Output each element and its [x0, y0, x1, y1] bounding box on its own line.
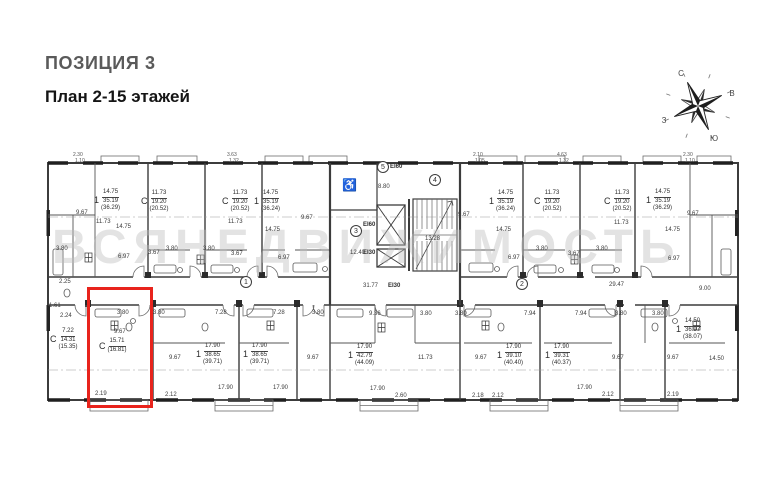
- dimension-label: 17.90: [577, 385, 592, 391]
- dimension-label: 1.32: [229, 158, 239, 164]
- entry-number-badge: 3: [350, 225, 362, 237]
- wheelchair-icon: ♿: [342, 178, 357, 192]
- fire-rating-label: EI30: [363, 250, 375, 256]
- dimension-label: 6.97: [118, 254, 130, 260]
- dimension-label: 3.80: [203, 246, 215, 252]
- dimension-label: 3.67: [568, 251, 580, 257]
- dimension-label: 2.12: [602, 392, 614, 398]
- dimension-label: 9.67: [667, 355, 679, 361]
- dimension-label: 2.25: [59, 279, 71, 285]
- dimension-label: 3.80: [166, 246, 178, 252]
- apartment-type: С: [534, 197, 541, 206]
- apartment-type: 1: [94, 196, 99, 205]
- dimension-label: 2.24: [60, 313, 72, 319]
- apartment-type: С: [50, 335, 57, 344]
- dimension-label: 17.90: [370, 386, 385, 392]
- dimension-label: 7.94: [524, 311, 536, 317]
- dimension-label: 3.67: [148, 250, 160, 256]
- fire-rating-label: EI60: [363, 222, 375, 228]
- entry-number-badge: 4: [429, 174, 441, 186]
- apartment-label: 117.9042.79(44.09): [348, 344, 374, 368]
- dimension-label: 3.80: [455, 311, 467, 317]
- apartment-label: 114.7535.19(36.24): [254, 190, 280, 214]
- apartment-label: 117.9039.31(40.37): [545, 344, 571, 368]
- apartment-label: 114.7535.19(36.29): [646, 189, 672, 213]
- dimension-label: 2.18: [472, 393, 484, 399]
- dimension-label: 9.67: [687, 211, 699, 217]
- dimension-label: 3.80: [153, 310, 165, 316]
- position-title: ПОЗИЦИЯ 3: [45, 53, 156, 74]
- dimension-label: 2.12: [165, 392, 177, 398]
- dimension-label: 11.73: [96, 219, 111, 225]
- dimension-label: 31.77: [363, 283, 378, 289]
- compass-east-label: В: [729, 89, 734, 98]
- apartment-label: С11.7319.20(20.52): [222, 190, 250, 214]
- apartment-type: С: [222, 197, 229, 206]
- dimension-label: 6.97: [278, 255, 290, 261]
- dimension-label: 1.61: [49, 303, 61, 309]
- entry-number-badge: 1: [240, 276, 252, 288]
- compass-south-label: Ю: [710, 134, 718, 143]
- dimension-label: 1.32: [559, 158, 569, 164]
- apartment-type: С: [604, 197, 611, 206]
- apartment-type: С: [141, 197, 148, 206]
- dimension-label: 14.75: [265, 227, 280, 233]
- dimension-label: 3.80: [312, 310, 324, 316]
- dimension-label: 7.28: [215, 310, 227, 316]
- apartment-label: С7.2214.31(15.35): [50, 328, 78, 352]
- highlighted-apartment-outline[interactable]: [87, 287, 153, 408]
- dimension-label: 14.50: [709, 356, 724, 362]
- apartment-label: 114.7535.19(36.24): [489, 190, 515, 214]
- apartment-type: 1: [545, 351, 550, 360]
- dimension-label: 11.73: [418, 355, 433, 361]
- dimension-label: 13.28: [425, 236, 440, 242]
- entry-number-badge: 5: [377, 161, 389, 173]
- dimension-label: 3.80: [536, 246, 548, 252]
- dimension-label: 1.05: [475, 158, 485, 164]
- apartment-type: 1: [497, 351, 502, 360]
- apartment-label: 117.9039.10(40.40): [497, 344, 523, 368]
- dimension-label: 1.10: [685, 158, 695, 164]
- apartment-type: 1: [676, 325, 681, 334]
- dimension-label: 9.67: [307, 355, 319, 361]
- floor-plan-page: ПОЗИЦИЯ 3 План 2-15 этажей С В З Ю: [0, 0, 784, 500]
- apartment-label: 114.7535.19(36.29): [94, 189, 120, 213]
- apartment-label: С11.7319.20(20.52): [534, 190, 562, 214]
- dimension-label: 3.67: [231, 251, 243, 257]
- dimension-label: 3.80: [615, 311, 627, 317]
- apartment-label: 114.5036.97(38.07): [676, 318, 702, 342]
- dimension-label: 9.67: [458, 212, 470, 218]
- dimension-label: 29.47: [609, 282, 624, 288]
- apartment-label: 117.9038.65(39.71): [196, 343, 222, 367]
- dimension-label: 6.97: [668, 256, 680, 262]
- dimension-label: 14.75: [496, 227, 511, 233]
- compass-north-label: С: [678, 69, 684, 78]
- apartment-type: 1: [196, 350, 201, 359]
- dimension-label: 17.90: [218, 385, 233, 391]
- dimension-label: 14.75: [116, 224, 131, 230]
- dimension-label: 9.36: [369, 311, 381, 317]
- dimension-label: 7.94: [575, 311, 587, 317]
- apartment-type: 1: [348, 351, 353, 360]
- entry-number-badge: 2: [516, 278, 528, 290]
- dimension-label: 17.90: [273, 385, 288, 391]
- dimension-label: 11.73: [614, 220, 629, 226]
- apartment-label: С11.7319.20(20.52): [604, 190, 632, 214]
- compass-west-label: З: [662, 116, 667, 125]
- apartment-type: 1: [243, 350, 248, 359]
- apartment-label: С11.7319.20(20.52): [141, 190, 169, 214]
- apartment-type: 1: [254, 197, 259, 206]
- dimension-label: 3.80: [56, 246, 68, 252]
- dimension-label: 11.73: [228, 219, 243, 225]
- dimension-label: 9.67: [301, 215, 313, 221]
- dimension-label: 6.97: [508, 255, 520, 261]
- dimension-label: 14.75: [665, 227, 680, 233]
- apartment-type: 1: [646, 196, 651, 205]
- compass-rose-icon: С В З Ю: [650, 56, 746, 152]
- dimension-label: 2.19: [667, 392, 679, 398]
- apartment-type: 1: [489, 197, 494, 206]
- dimension-label: 3.80: [596, 246, 608, 252]
- dimension-label: 9.67: [475, 355, 487, 361]
- dimension-label: 8.80: [378, 184, 390, 190]
- apartment-label: 117.9038.65(39.71): [243, 343, 269, 367]
- dimension-label: 9.67: [169, 355, 181, 361]
- dimension-label: 2.12: [492, 393, 504, 399]
- dimension-label: 2.60: [395, 393, 407, 399]
- dimension-label: 1.10: [75, 158, 85, 164]
- fire-rating-label: EI30: [388, 283, 400, 289]
- dimension-label: 9.00: [699, 286, 711, 292]
- dimension-label: 9.67: [612, 355, 624, 361]
- plan-title: План 2-15 этажей: [45, 87, 190, 107]
- fire-rating-label: EI60: [390, 164, 402, 170]
- dimension-label: 9.67: [76, 210, 88, 216]
- dimension-label: 3.80: [652, 311, 664, 317]
- dimension-label: 7.28: [273, 310, 285, 316]
- dimension-label: 3.80: [420, 311, 432, 317]
